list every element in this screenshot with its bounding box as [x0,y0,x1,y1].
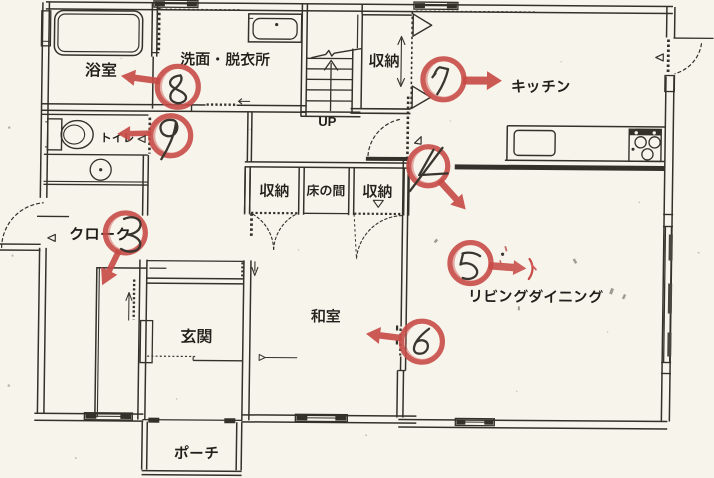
svg-text:UP: UP [318,114,337,129]
